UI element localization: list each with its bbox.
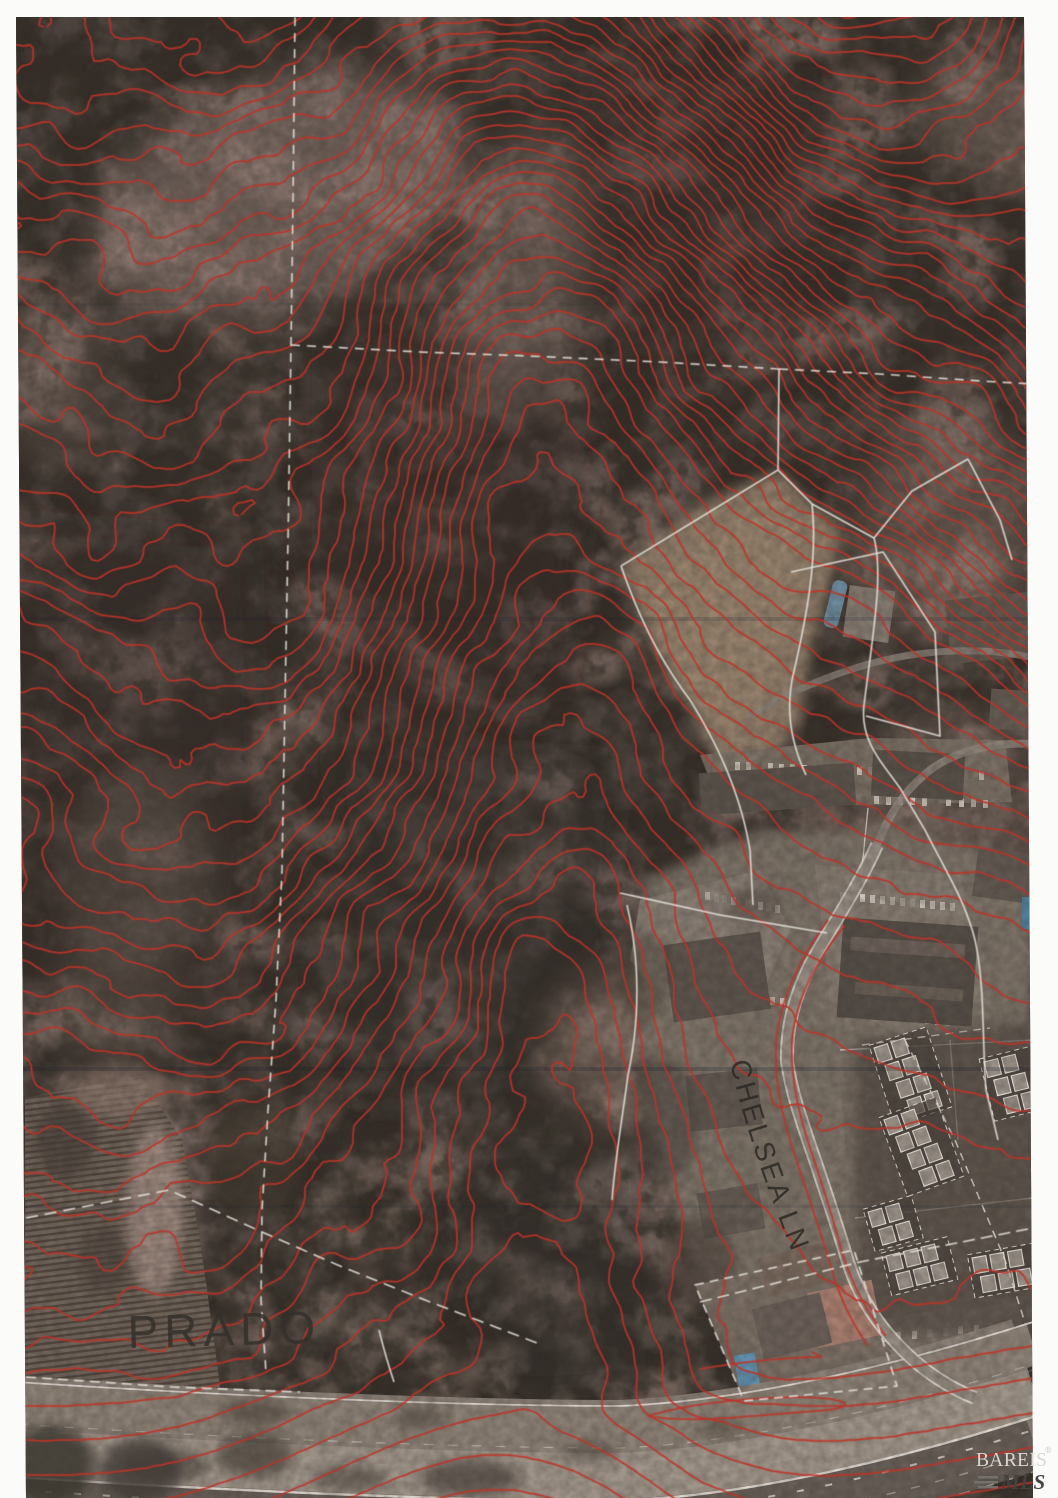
svg-text:MLS: MLS	[1000, 1470, 1046, 1494]
svg-text:BAREIS: BAREIS	[976, 1450, 1047, 1471]
svg-text:®: ®	[1045, 1445, 1052, 1455]
svg-text:PRADO: PRADO	[127, 1301, 322, 1358]
